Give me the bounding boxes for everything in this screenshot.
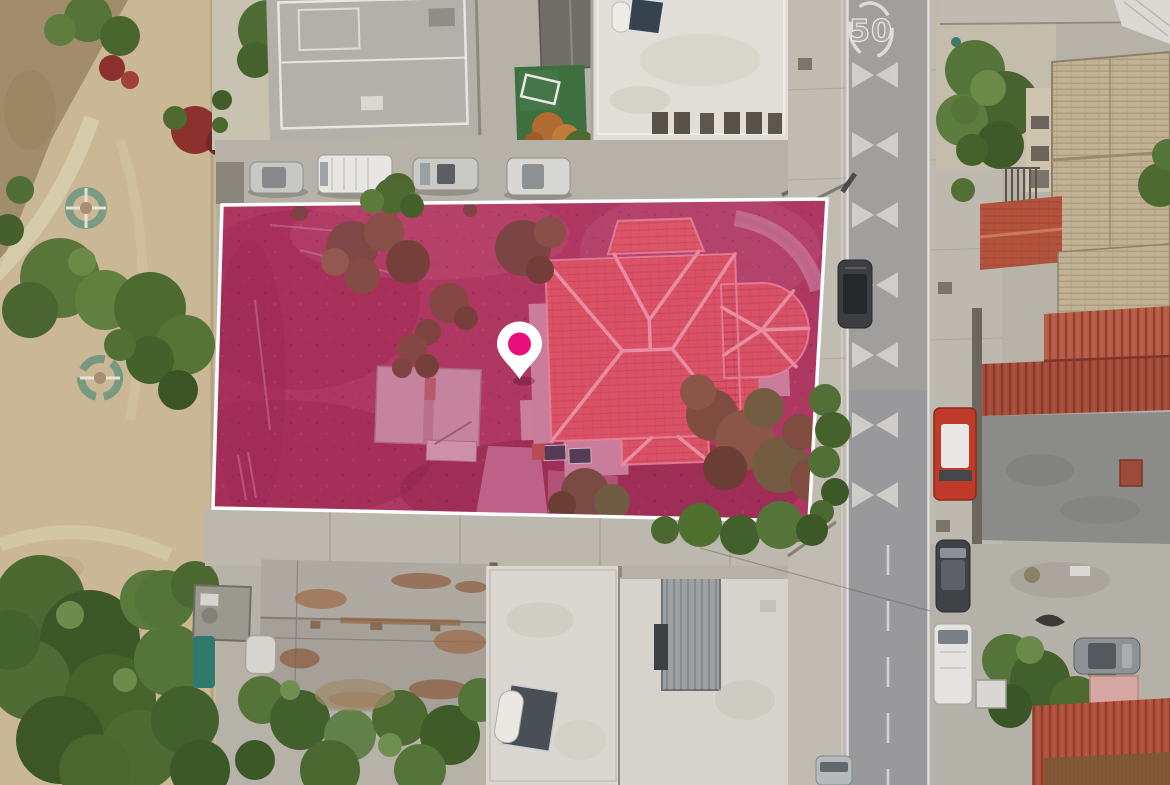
gray-car-right-yard [1074, 638, 1140, 674]
white-building-bottom-right [620, 578, 790, 785]
solar-water-heater [493, 683, 559, 751]
road-speed-marking-50: 50 [849, 14, 893, 49]
red-truck [934, 408, 976, 500]
white-building-bottom-left [486, 566, 620, 785]
shed-small [193, 585, 251, 641]
pin-shadow [513, 377, 535, 386]
park-bench-circle-upper [66, 188, 106, 228]
tan-tile-roof-2 [1058, 244, 1170, 316]
silver-car-bottom-edge [816, 756, 852, 785]
aerial-photo: 50 [0, 0, 1170, 785]
pin-dot [508, 333, 531, 356]
building-roof-topleft [266, 0, 480, 141]
white-building-top [592, 0, 790, 140]
aerial-photo-canvas: 50 [0, 0, 1170, 785]
solar-panel [628, 0, 664, 34]
rooftop-tank [245, 635, 276, 674]
water-heater-tank [612, 2, 630, 32]
green-tarp [193, 636, 215, 688]
dark-car-lower [936, 540, 970, 612]
white-van-lower [934, 624, 972, 704]
ac-unit [976, 680, 1006, 708]
wall-block [216, 162, 244, 204]
chimney [1120, 460, 1142, 486]
